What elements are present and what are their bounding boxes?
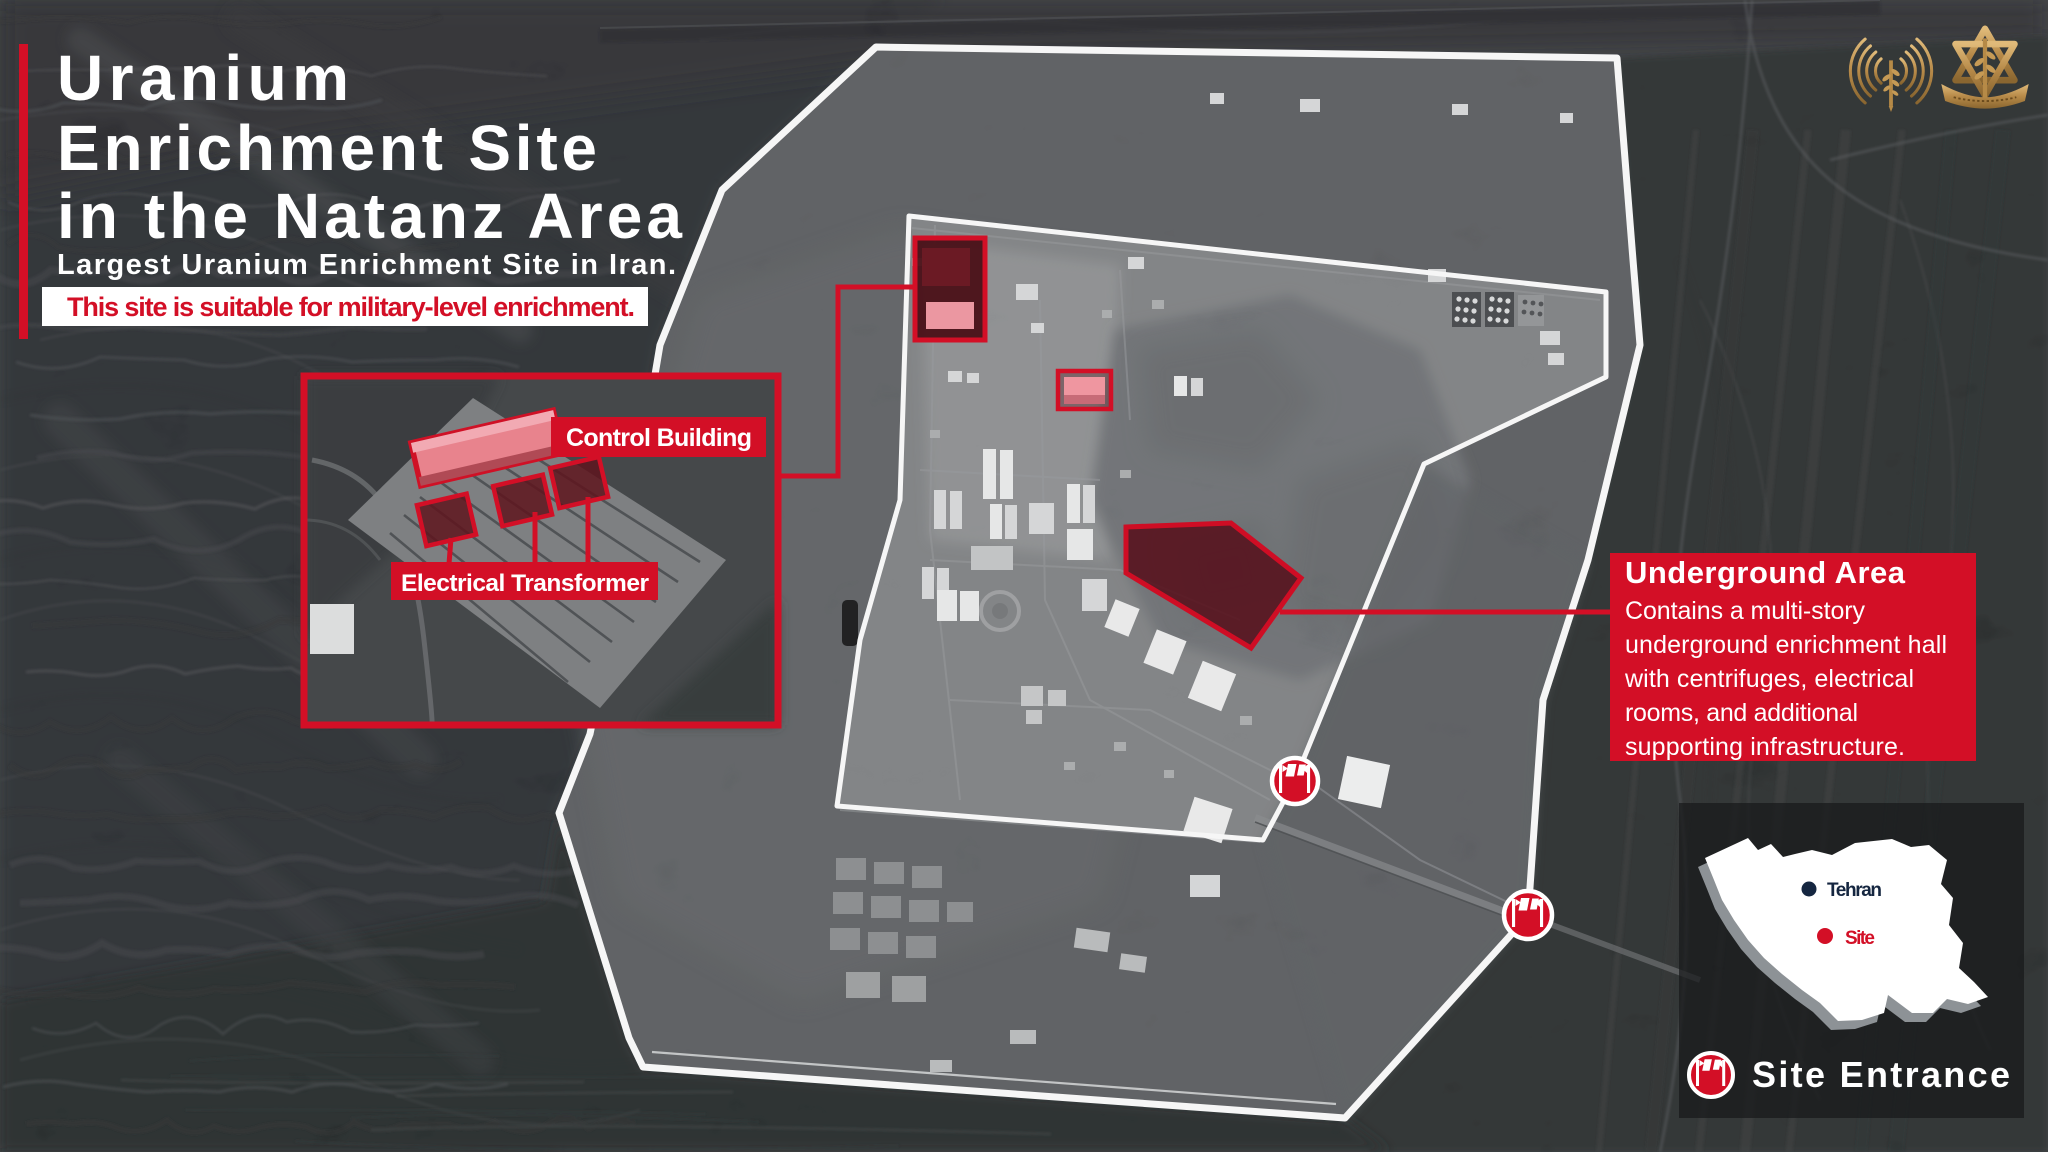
svg-text:Control Building: Control Building	[566, 424, 752, 452]
svg-text:Uranium: Uranium	[57, 42, 349, 114]
svg-text:underground enrichment hall: underground enrichment hall	[1625, 631, 1947, 659]
svg-text:Enrichment Site: Enrichment Site	[57, 112, 597, 184]
svg-text:Electrical Transformer: Electrical Transformer	[401, 570, 649, 597]
svg-text:This site is suitable for mili: This site is suitable for military-level…	[67, 292, 635, 322]
svg-text:Tehran: Tehran	[1827, 880, 1882, 901]
svg-text:Largest Uranium Enrichment Sit: Largest Uranium Enrichment Site in Iran.	[57, 249, 676, 281]
svg-text:Underground Area: Underground Area	[1625, 555, 1906, 590]
svg-text:Contains a multi-story: Contains a multi-story	[1625, 597, 1866, 625]
svg-text:Site: Site	[1845, 928, 1875, 949]
svg-text:with centrifuges, electrical: with centrifuges, electrical	[1624, 665, 1914, 693]
svg-text:Site Entrance: Site Entrance	[1752, 1054, 2010, 1095]
svg-text:supporting infrastructure.: supporting infrastructure.	[1625, 733, 1905, 761]
svg-text:rooms, and additional: rooms, and additional	[1625, 699, 1858, 727]
svg-text:in the Natanz Area: in the Natanz Area	[57, 180, 682, 252]
